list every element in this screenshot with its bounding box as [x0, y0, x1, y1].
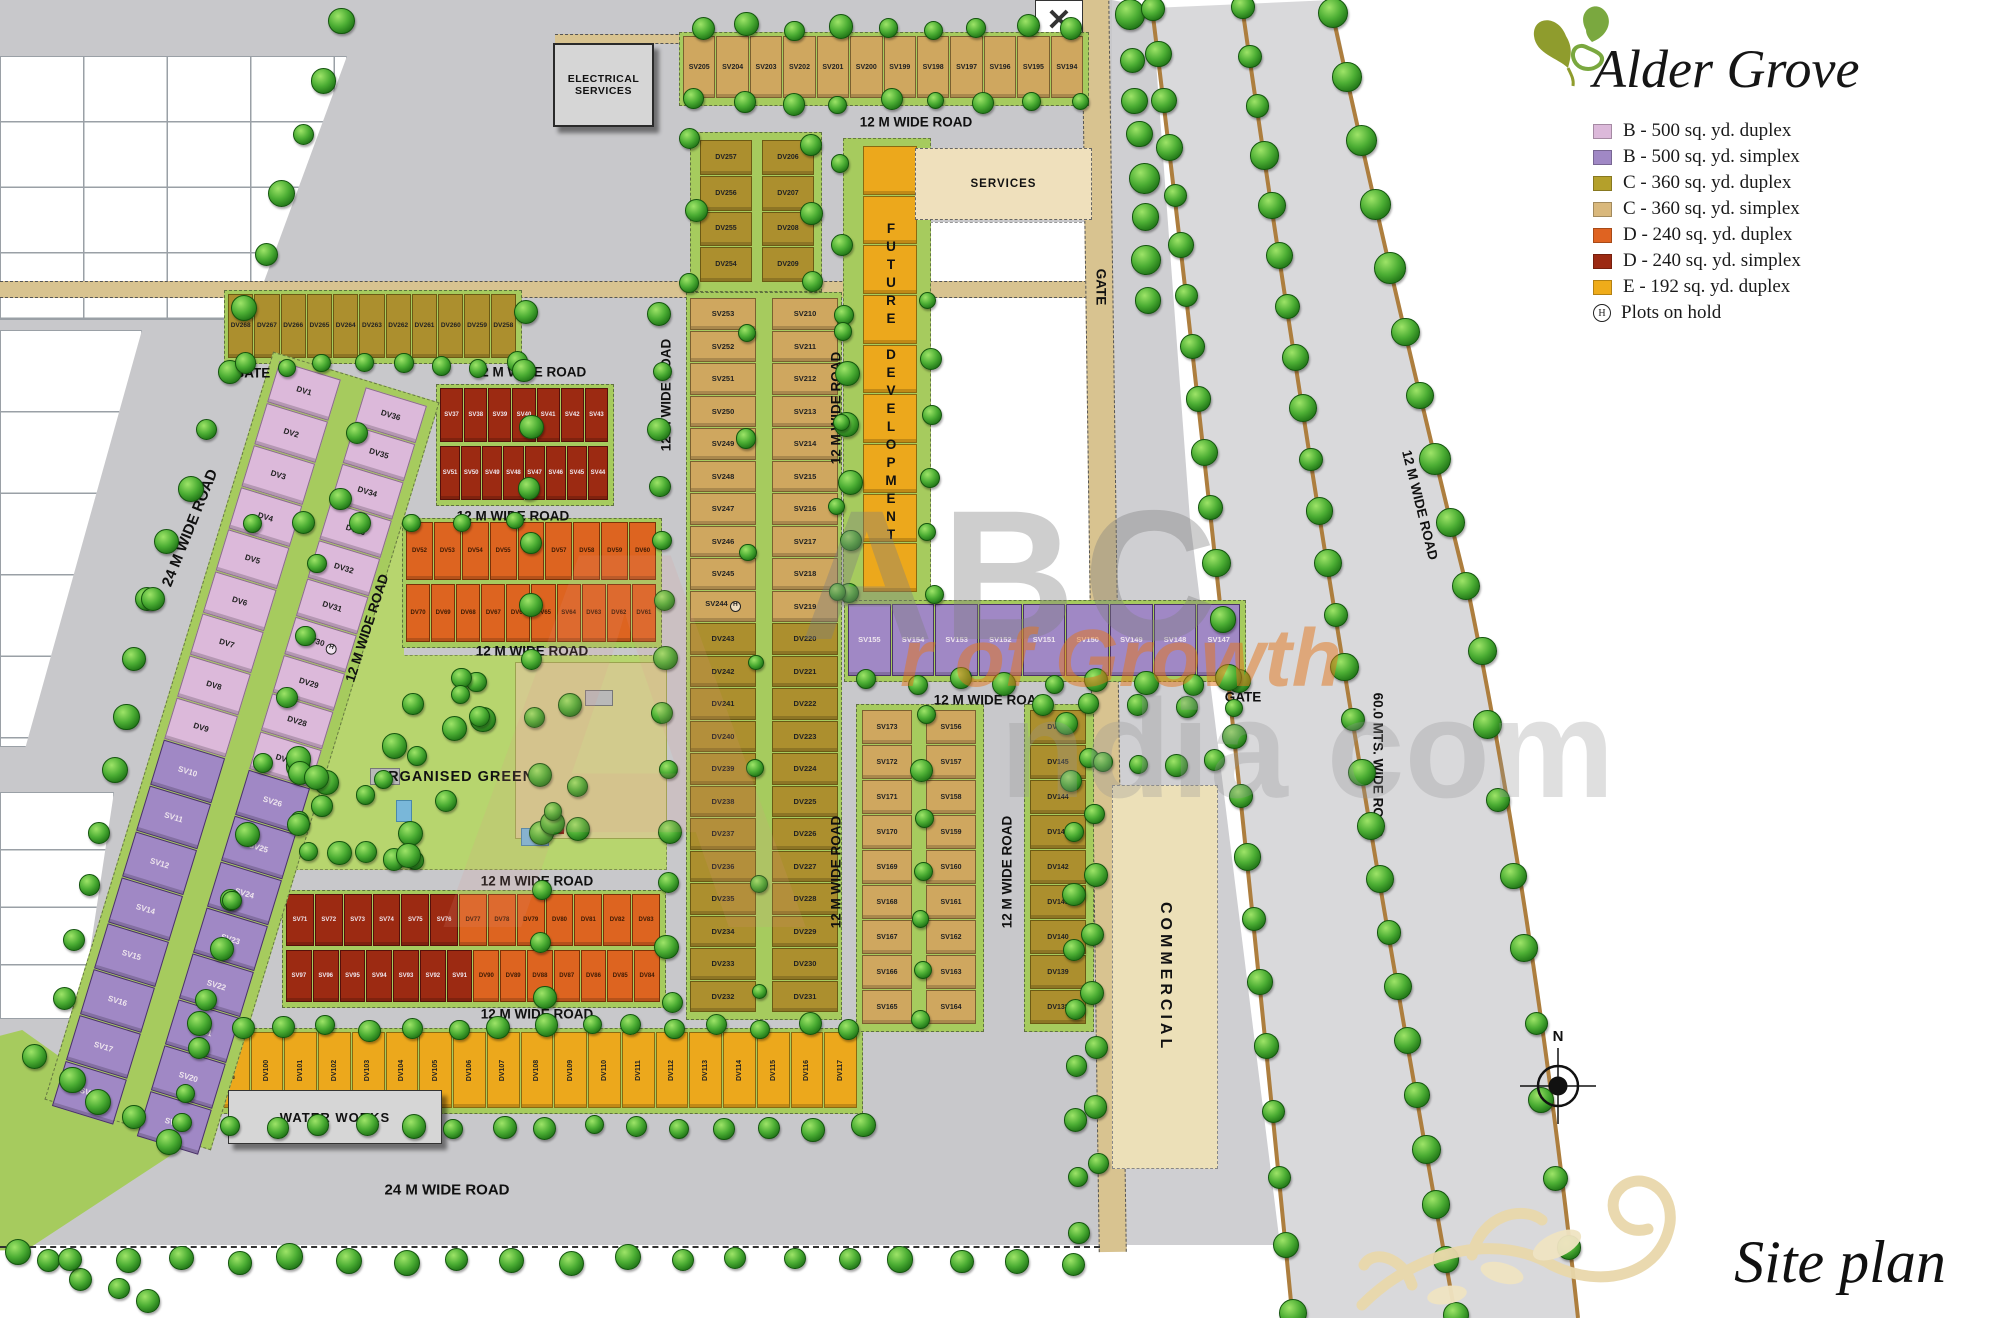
legend-swatch [1593, 124, 1612, 139]
tree-icon [293, 124, 314, 145]
plot: DV230 [772, 948, 838, 980]
tree-icon [59, 1067, 86, 1094]
electrical-services-box: ELECTRICAL SERVICES [553, 43, 654, 127]
tree-icon [469, 706, 490, 727]
tree-icon [925, 585, 944, 604]
plot-row-purple_row: SV155SV154SV153SV152SV151SV150SV149SV148… [848, 604, 1240, 676]
plot: DV115 [757, 1032, 790, 1108]
plot-row-top_row: SV205SV204SV203SV202SV201SV200SV199SV198… [683, 36, 1083, 98]
tree-icon [652, 531, 671, 550]
legend-swatch [1593, 150, 1612, 165]
tree-icon [1084, 1095, 1108, 1119]
tree-icon [355, 353, 374, 372]
plot: DV116 [791, 1032, 824, 1108]
plot: SV153 [935, 604, 978, 676]
tree-icon [1258, 192, 1286, 220]
tree-icon [519, 593, 543, 617]
plot: SV49 [482, 446, 502, 500]
tree-icon [1176, 696, 1198, 718]
legend-swatch [1593, 254, 1612, 269]
tree-icon [914, 862, 933, 881]
plot: SV51 [440, 446, 460, 500]
plot: DV84 [634, 950, 660, 1002]
tree-icon [746, 759, 764, 777]
tree-icon [396, 843, 421, 868]
tree-icon [336, 1248, 362, 1274]
plot: SV248 [690, 461, 756, 493]
tree-icon [69, 1268, 92, 1291]
tree-icon [116, 1248, 141, 1273]
tree-icon [1238, 45, 1261, 68]
tree-icon [519, 415, 544, 440]
tree-icon [1346, 125, 1377, 156]
plot-row-dv268_row: DV268DV267DV266DV265DV264DV263DV262DV261… [228, 294, 516, 358]
tree-icon [187, 1011, 212, 1036]
tree-icon [734, 12, 758, 36]
plot: SV157 [926, 745, 976, 779]
tree-icon [1088, 1153, 1109, 1174]
plot: SV45 [567, 446, 587, 500]
gate-label: GATE [1094, 269, 1109, 306]
tree-icon [122, 1105, 146, 1129]
tree-icon [1222, 724, 1247, 749]
plot: DV70 [406, 584, 430, 642]
legend-item-label: C - 360 sq. yd. simplex [1623, 198, 1800, 220]
plot: SV247 [690, 493, 756, 525]
plot: SV244 H [690, 591, 756, 623]
tree-icon [267, 1117, 288, 1138]
plot: DV117 [824, 1032, 857, 1108]
plot: DV243 [690, 623, 756, 655]
tree-icon [253, 753, 273, 773]
plot: SV76 [430, 894, 458, 946]
tree-icon [1168, 232, 1194, 258]
tree-icon [1314, 549, 1342, 577]
tree-icon [443, 1119, 463, 1139]
plot: SV163 [926, 955, 976, 989]
tree-icon [327, 841, 351, 865]
tree-icon [1165, 754, 1188, 777]
plot: SV97 [286, 950, 312, 1002]
tree-icon [1186, 386, 1211, 411]
tree-icon [307, 1114, 329, 1136]
tree-icon [802, 271, 823, 292]
legend-item-label: B - 500 sq. yd. simplex [1623, 146, 1800, 168]
tree-icon [653, 362, 672, 381]
tree-icon [122, 647, 146, 671]
plot: SV168 [862, 885, 912, 919]
tree-icon [79, 874, 100, 895]
tree-icon [307, 554, 326, 573]
tree-icon [172, 1113, 191, 1132]
tree-icon [453, 514, 471, 532]
tree-icon [626, 1116, 647, 1137]
tree-icon [654, 935, 679, 960]
tree-icon [1093, 752, 1113, 772]
tree-icon [231, 295, 257, 321]
tree-icon [358, 1020, 381, 1043]
tree-icon [685, 199, 708, 222]
electrical-label-1: ELECTRICAL [568, 73, 640, 85]
tree-icon [1183, 674, 1204, 695]
tree-icon [887, 1246, 913, 1272]
tree-icon [156, 1129, 182, 1155]
plot: DV89 [500, 950, 526, 1002]
tree-icon [493, 1116, 516, 1139]
plot: SV43 [585, 388, 608, 442]
legend-item: D - 240 sq. yd. simplex [1593, 248, 1801, 274]
hold-symbol-icon: H [1593, 304, 1611, 322]
tree-icon [724, 1247, 746, 1269]
plot: DV86 [581, 950, 607, 1002]
plot: SV73 [344, 894, 372, 946]
plot: SV92 [420, 950, 446, 1002]
tree-icon [734, 91, 755, 112]
plot: DV110 [588, 1032, 621, 1108]
tree-icon [1121, 88, 1148, 115]
legend-swatch [1593, 280, 1612, 295]
plot: SV204 [716, 36, 748, 98]
tree-icon [800, 202, 822, 224]
tree-icon [1242, 907, 1266, 931]
tree-icon [1275, 294, 1300, 319]
compass: N [1520, 1028, 1596, 1129]
tree-icon [1068, 1167, 1088, 1187]
tree-icon [1156, 134, 1183, 161]
plot: DV261 [412, 294, 437, 358]
plot: DV237 [690, 818, 756, 850]
plot-col-central_left: SV253SV252SV251SV250SV249SV248SV247SV246… [690, 298, 756, 1012]
plot: DV221 [772, 656, 838, 688]
tree-icon [1282, 344, 1309, 371]
tree-icon [1247, 969, 1272, 994]
tree-icon [653, 646, 677, 670]
plot-col-dv257_col: DV257DV256DV255DV254 [700, 140, 752, 282]
tree-icon [879, 18, 898, 37]
plot: DV254 [700, 247, 752, 282]
plot: DV78 [488, 894, 516, 946]
plot: DV114 [723, 1032, 756, 1108]
tree-icon [784, 1248, 806, 1270]
tree-icon [243, 514, 262, 533]
plot: SV164 [926, 990, 976, 1024]
plot: SV219 [772, 591, 838, 623]
plot: DV107 [487, 1032, 520, 1108]
plot: DV222 [772, 688, 838, 720]
tree-icon [1357, 812, 1385, 840]
tree-icon [831, 154, 849, 172]
tree-icon [911, 1010, 930, 1029]
plot: DV264 [333, 294, 358, 358]
tree-icon [1262, 1100, 1285, 1123]
boundary-band-horizontal [0, 281, 1112, 298]
commercial-label: COMMERCIAL [1156, 902, 1174, 1052]
tree-icon [647, 302, 671, 326]
tree-icon [1324, 603, 1348, 627]
tree-icon [312, 354, 330, 372]
tree-icon [276, 1243, 302, 1269]
plot: DV258 [491, 294, 516, 358]
tree-icon [1348, 759, 1375, 786]
tree-icon [402, 1114, 426, 1138]
tree-icon [1151, 88, 1176, 113]
legend: B - 500 sq. yd. duplexB - 500 sq. yd. si… [1593, 118, 1801, 326]
plot: DV68 [456, 584, 480, 642]
plot: DV266 [281, 294, 306, 358]
tree-icon [662, 992, 683, 1013]
tree-icon [658, 820, 682, 844]
tree-icon [1289, 394, 1317, 422]
tree-icon [544, 802, 562, 820]
project-title: Alder Grove [1593, 38, 1953, 100]
legend-hold-item: HPlots on hold [1593, 300, 1801, 326]
plot: SV250 [690, 396, 756, 428]
tree-icon [1473, 710, 1502, 739]
tree-icon [235, 822, 260, 847]
plot: SV150 [1066, 604, 1109, 676]
plot: SV151 [1023, 604, 1066, 676]
plot: DV267 [254, 294, 279, 358]
tree-icon [1510, 934, 1538, 962]
park-lawn [515, 662, 667, 839]
plot: SV171 [862, 780, 912, 814]
plot: DV263 [359, 294, 384, 358]
tree-icon [1084, 863, 1108, 887]
tree-icon [752, 984, 767, 999]
plot: SV166 [862, 955, 912, 989]
tree-icon [287, 813, 310, 836]
tree-icon [736, 428, 757, 449]
tree-icon [1145, 41, 1171, 67]
tree-icon [1064, 1108, 1087, 1131]
legend-item: E - 192 sq. yd. duplex [1593, 274, 1801, 300]
road-label: 12 M WIDE ROAD [829, 816, 844, 929]
tree-icon [382, 733, 408, 759]
tree-icon [672, 1249, 694, 1271]
tree-icon [835, 361, 860, 386]
tree-icon [1330, 653, 1358, 681]
tree-icon [295, 626, 315, 646]
plot: SV96 [313, 950, 339, 1002]
tree-icon [58, 1248, 82, 1272]
plot: SV196 [984, 36, 1016, 98]
tree-icon [838, 1019, 859, 1040]
tree-icon [398, 821, 423, 846]
plot: SV202 [783, 36, 815, 98]
tree-icon [1129, 163, 1160, 194]
tree-icon [469, 359, 487, 377]
tree-icon [328, 8, 354, 34]
plot: DV241 [690, 688, 756, 720]
tree-icon [1332, 62, 1361, 91]
tree-icon [1065, 999, 1086, 1020]
tree-icon [1215, 664, 1242, 691]
plot: DV57 [545, 522, 572, 580]
plot: DV63 [582, 584, 606, 642]
plot-row-mixed_r2: SV97SV96SV95SV94SV93SV92SV91DV90DV89DV88… [286, 950, 660, 1002]
tree-icon [1085, 1036, 1108, 1059]
tree-icon [88, 822, 110, 844]
tree-icon [533, 986, 557, 1010]
tree-icon [1366, 865, 1394, 893]
plot: SV38 [464, 388, 487, 442]
plot: DV231 [772, 981, 838, 1013]
tree-icon [1078, 693, 1099, 714]
future-development-land [925, 222, 1092, 602]
tree-icon [1436, 508, 1465, 537]
tree-icon [1391, 318, 1420, 347]
plot: SV198 [917, 36, 949, 98]
swimming-pool-2 [396, 800, 412, 822]
tree-icon [1126, 121, 1152, 147]
tree-icon [828, 96, 846, 114]
plot: DV83 [632, 894, 660, 946]
tree-icon [1384, 973, 1412, 1001]
plot: SV39 [488, 388, 511, 442]
tree-icon [1022, 92, 1041, 111]
tree-icon [235, 352, 256, 373]
tree-icon [738, 324, 756, 342]
tree-icon [228, 1251, 251, 1274]
legend-item-label: D - 240 sq. yd. duplex [1623, 224, 1792, 246]
tree-icon [706, 1014, 727, 1035]
plot: SV42 [561, 388, 584, 442]
tree-icon [311, 795, 332, 816]
plot: SV37 [440, 388, 463, 442]
legend-item-label: E - 192 sq. yd. duplex [1623, 276, 1790, 298]
legend-item: D - 240 sq. yd. duplex [1593, 222, 1801, 248]
plot: SV94 [366, 950, 392, 1002]
plot: DV113 [689, 1032, 722, 1108]
plot: SV170 [862, 815, 912, 849]
electrical-label-2: SERVICES [575, 85, 632, 97]
tree-icon [442, 716, 467, 741]
tree-icon [102, 757, 128, 783]
plot: DV61 [632, 584, 656, 642]
tree-icon [402, 1018, 423, 1039]
plot: SV201 [817, 36, 849, 98]
plot: DV265 [307, 294, 332, 358]
tree-icon [178, 476, 204, 502]
tree-icon [255, 243, 278, 266]
tree-icon [356, 785, 375, 804]
plot: SV162 [926, 920, 976, 954]
tree-icon [831, 234, 853, 256]
plot: DV90 [473, 950, 499, 1002]
tree-icon [222, 891, 241, 910]
tree-icon [1175, 284, 1198, 307]
services-box: SERVICES [915, 148, 1092, 220]
legend-item: B - 500 sq. yd. simplex [1593, 144, 1801, 170]
tree-icon [514, 300, 538, 324]
tree-icon [1063, 939, 1085, 961]
plot: DV112 [656, 1032, 689, 1108]
plot: DV223 [772, 721, 838, 753]
plot: DV59 [601, 522, 628, 580]
tree-icon [346, 422, 369, 445]
tree-icon [329, 488, 352, 511]
tree-icon [851, 1113, 875, 1137]
legend-item-label: D - 240 sq. yd. simplex [1623, 250, 1801, 272]
plot: SV217 [772, 526, 838, 558]
tree-icon [1084, 804, 1104, 824]
tree-icon [758, 1117, 780, 1139]
road-label: 12 M WIDE ROAD [860, 115, 973, 130]
plot: SV91 [447, 950, 473, 1002]
plot: DV85 [607, 950, 633, 1002]
plot: SV172 [862, 745, 912, 779]
tree-icon [1468, 637, 1496, 665]
plot: DV262 [386, 294, 411, 358]
tree-icon [1210, 606, 1236, 632]
tree-icon [169, 1246, 194, 1271]
tree-icon [22, 1044, 47, 1069]
plot: DV259 [464, 294, 489, 358]
plot: SV95 [340, 950, 366, 1002]
plot: SV215 [772, 461, 838, 493]
tree-icon [1500, 863, 1527, 890]
tree-icon [136, 1289, 160, 1313]
plot: SV64 [557, 584, 581, 642]
plot: DV67 [481, 584, 505, 642]
tree-icon [276, 687, 298, 709]
legend-swatch [1593, 228, 1612, 243]
plot: DV81 [574, 894, 602, 946]
plot: DV62 [607, 584, 631, 642]
floral-ornament [1352, 1145, 1732, 1318]
legend-hold-label: Plots on hold [1621, 302, 1721, 324]
tree-icon [1080, 981, 1104, 1005]
tree-icon [1246, 94, 1270, 118]
tree-icon [908, 675, 928, 695]
plot: SV167 [862, 920, 912, 954]
plot: DV111 [622, 1032, 655, 1108]
tree-icon [919, 292, 936, 309]
plot: SV160 [926, 850, 976, 884]
tree-icon [1273, 1232, 1299, 1258]
plot: DV236 [690, 851, 756, 883]
tree-icon [356, 1113, 379, 1136]
plot: DV256 [700, 176, 752, 211]
site-plan-canvas: ORGANISED GREEN FUTURE DEVELOPMENT SV205… [0, 0, 2000, 1318]
plot: SV203 [750, 36, 782, 98]
tree-icon [506, 512, 524, 530]
plot: SV197 [950, 36, 982, 98]
tree-icon [683, 88, 704, 109]
tree-icon [1198, 495, 1223, 520]
plot: DV109 [554, 1032, 587, 1108]
legend-item: C - 360 sq. yd. simplex [1593, 196, 1801, 222]
tree-icon [914, 961, 932, 979]
tree-icon [196, 419, 217, 440]
plot: DV224 [772, 753, 838, 785]
plot: DV233 [690, 948, 756, 980]
tree-icon [1084, 668, 1108, 692]
plot: SV173 [862, 710, 912, 744]
plot: DV232 [690, 981, 756, 1013]
tree-icon [272, 1016, 294, 1038]
tree-icon [1360, 189, 1391, 220]
tree-icon [435, 790, 457, 812]
tree-icon [1306, 497, 1334, 525]
tree-icon [1135, 287, 1161, 313]
tree-icon [654, 590, 675, 611]
tree-icon [1062, 883, 1086, 907]
organised-green-label: ORGANISED GREEN [376, 769, 534, 785]
plot: SV74 [373, 894, 401, 946]
tree-icon [840, 530, 862, 552]
plot: SV71 [286, 894, 314, 946]
